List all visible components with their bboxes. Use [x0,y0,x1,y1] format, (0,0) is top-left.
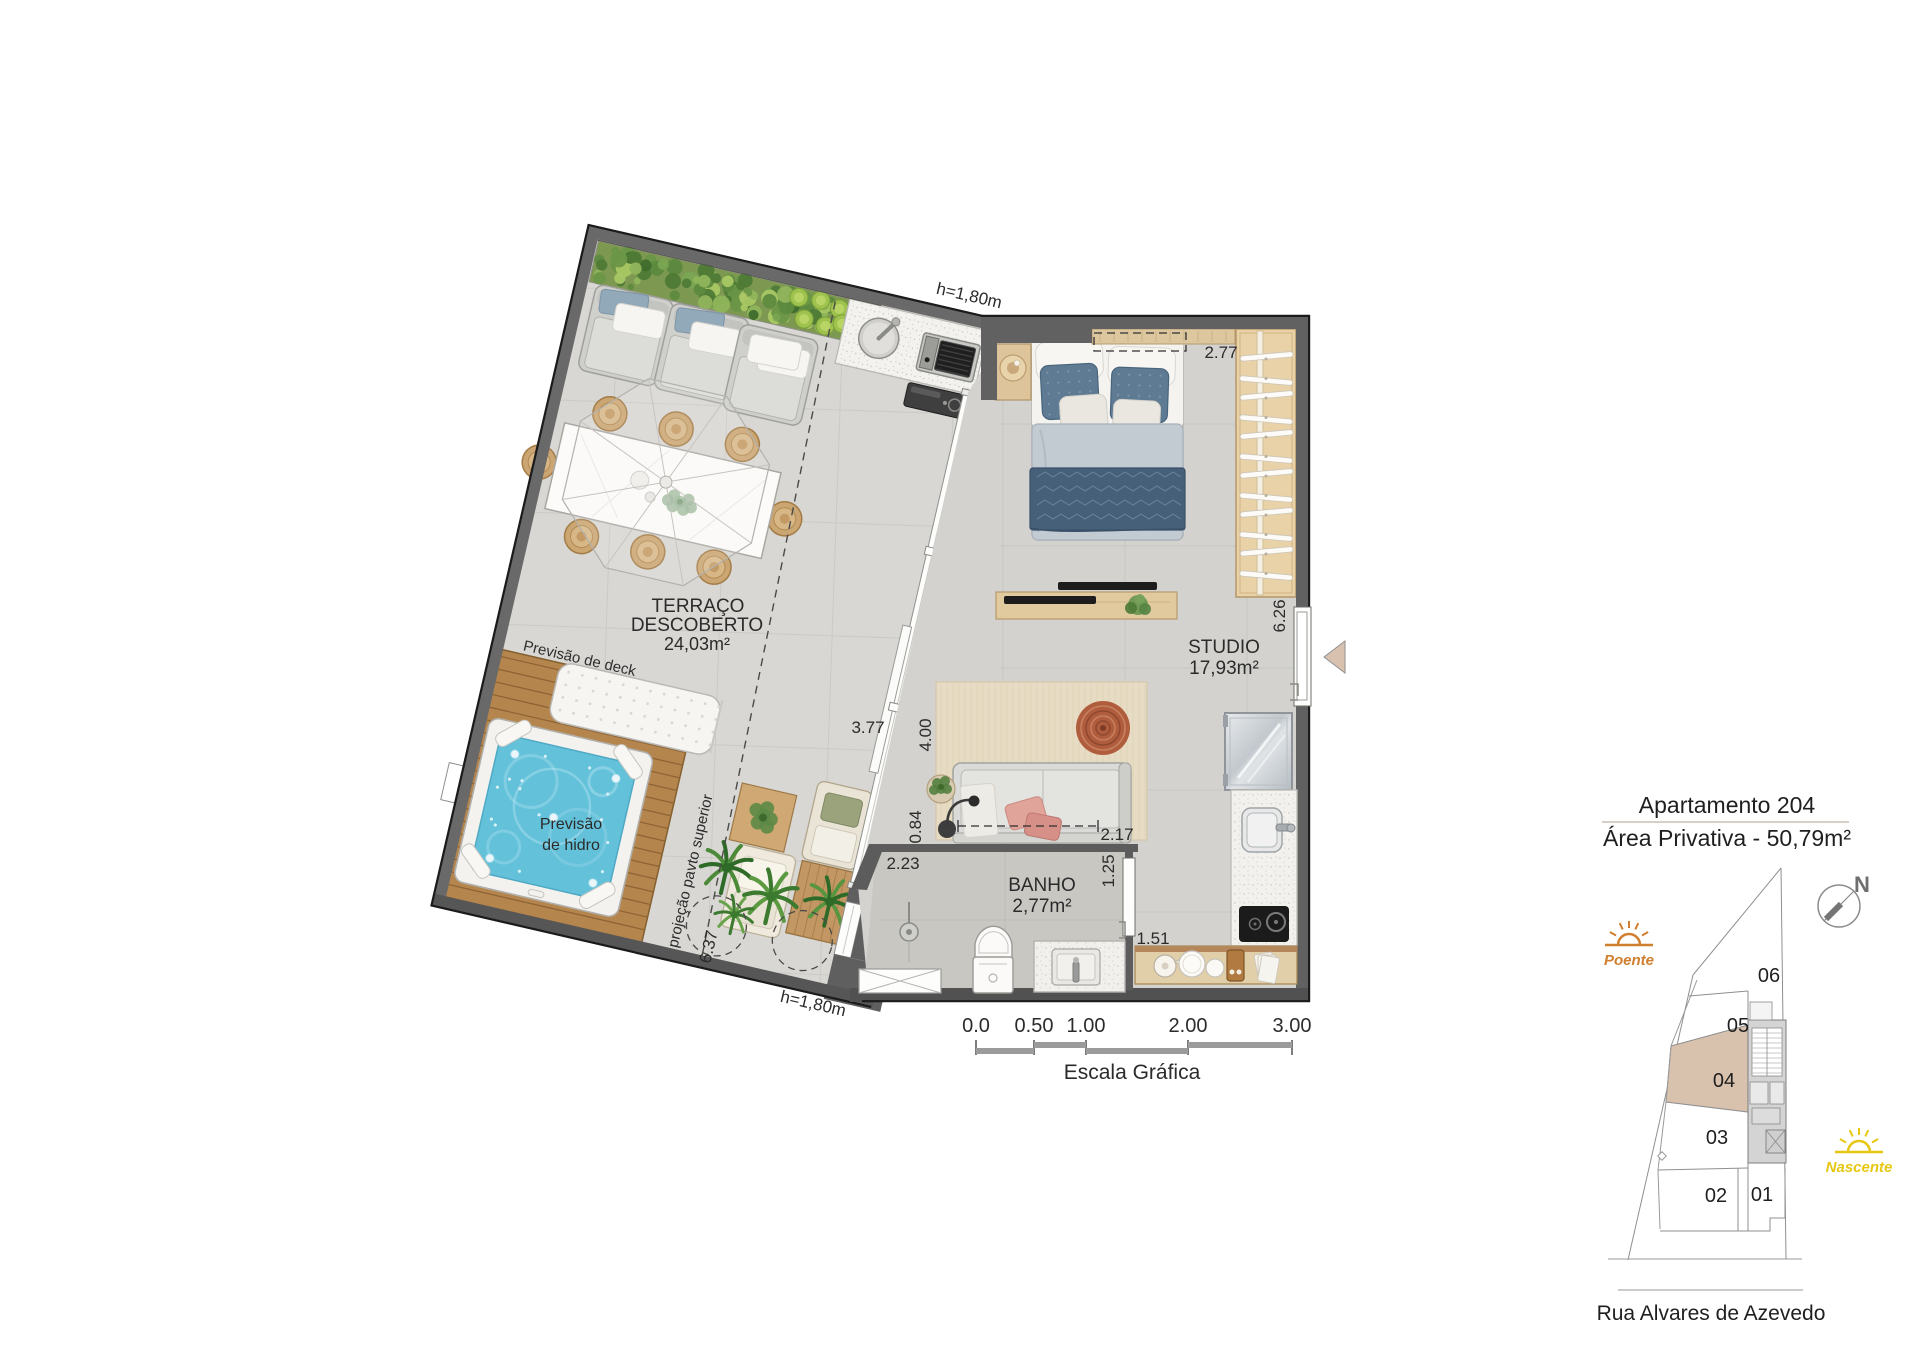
svg-text:N: N [1854,872,1870,897]
svg-text:1.51: 1.51 [1136,929,1169,948]
svg-text:17,93m²: 17,93m² [1189,658,1259,679]
svg-text:TERRAÇO: TERRAÇO [652,596,745,617]
svg-text:04: 04 [1713,1070,1735,1092]
svg-text:4.00: 4.00 [916,718,935,751]
svg-text:03: 03 [1706,1127,1728,1149]
svg-text:24,03m²: 24,03m² [664,634,730,654]
svg-text:3.77: 3.77 [851,718,884,737]
svg-text:Apartamento 204: Apartamento 204 [1639,792,1816,818]
svg-text:0.84: 0.84 [906,810,925,843]
svg-text:Área Privativa - 50,79m²: Área Privativa - 50,79m² [1603,825,1851,851]
svg-text:05: 05 [1727,1015,1749,1037]
svg-text:2,77m²: 2,77m² [1012,896,1071,917]
svg-text:Poente: Poente [1604,952,1654,969]
svg-text:Escala Gráfica: Escala Gráfica [1064,1061,1201,1084]
svg-text:Rua Alvares de Azevedo: Rua Alvares de Azevedo [1597,1302,1826,1325]
svg-text:02: 02 [1705,1185,1727,1207]
svg-text:0.50: 0.50 [1015,1015,1054,1037]
svg-text:Nascente: Nascente [1826,1159,1893,1176]
svg-text:1.25: 1.25 [1099,854,1118,887]
svg-text:de hidro: de hidro [542,837,600,854]
svg-text:STUDIO: STUDIO [1188,637,1260,658]
svg-text:0.0: 0.0 [962,1015,990,1037]
svg-text:06: 06 [1758,965,1780,987]
svg-text:Previsão: Previsão [540,816,602,833]
svg-text:2.77: 2.77 [1204,343,1237,362]
svg-text:1.00: 1.00 [1067,1015,1106,1037]
svg-text:3.00: 3.00 [1273,1015,1312,1037]
svg-text:2.17: 2.17 [1100,825,1133,844]
svg-text:BANHO: BANHO [1008,875,1076,896]
svg-text:DESCOBERTO: DESCOBERTO [631,615,763,636]
svg-text:01: 01 [1751,1184,1773,1206]
svg-text:2.00: 2.00 [1169,1015,1208,1037]
svg-text:2.23: 2.23 [886,854,919,873]
svg-text:6.26: 6.26 [1270,599,1289,632]
